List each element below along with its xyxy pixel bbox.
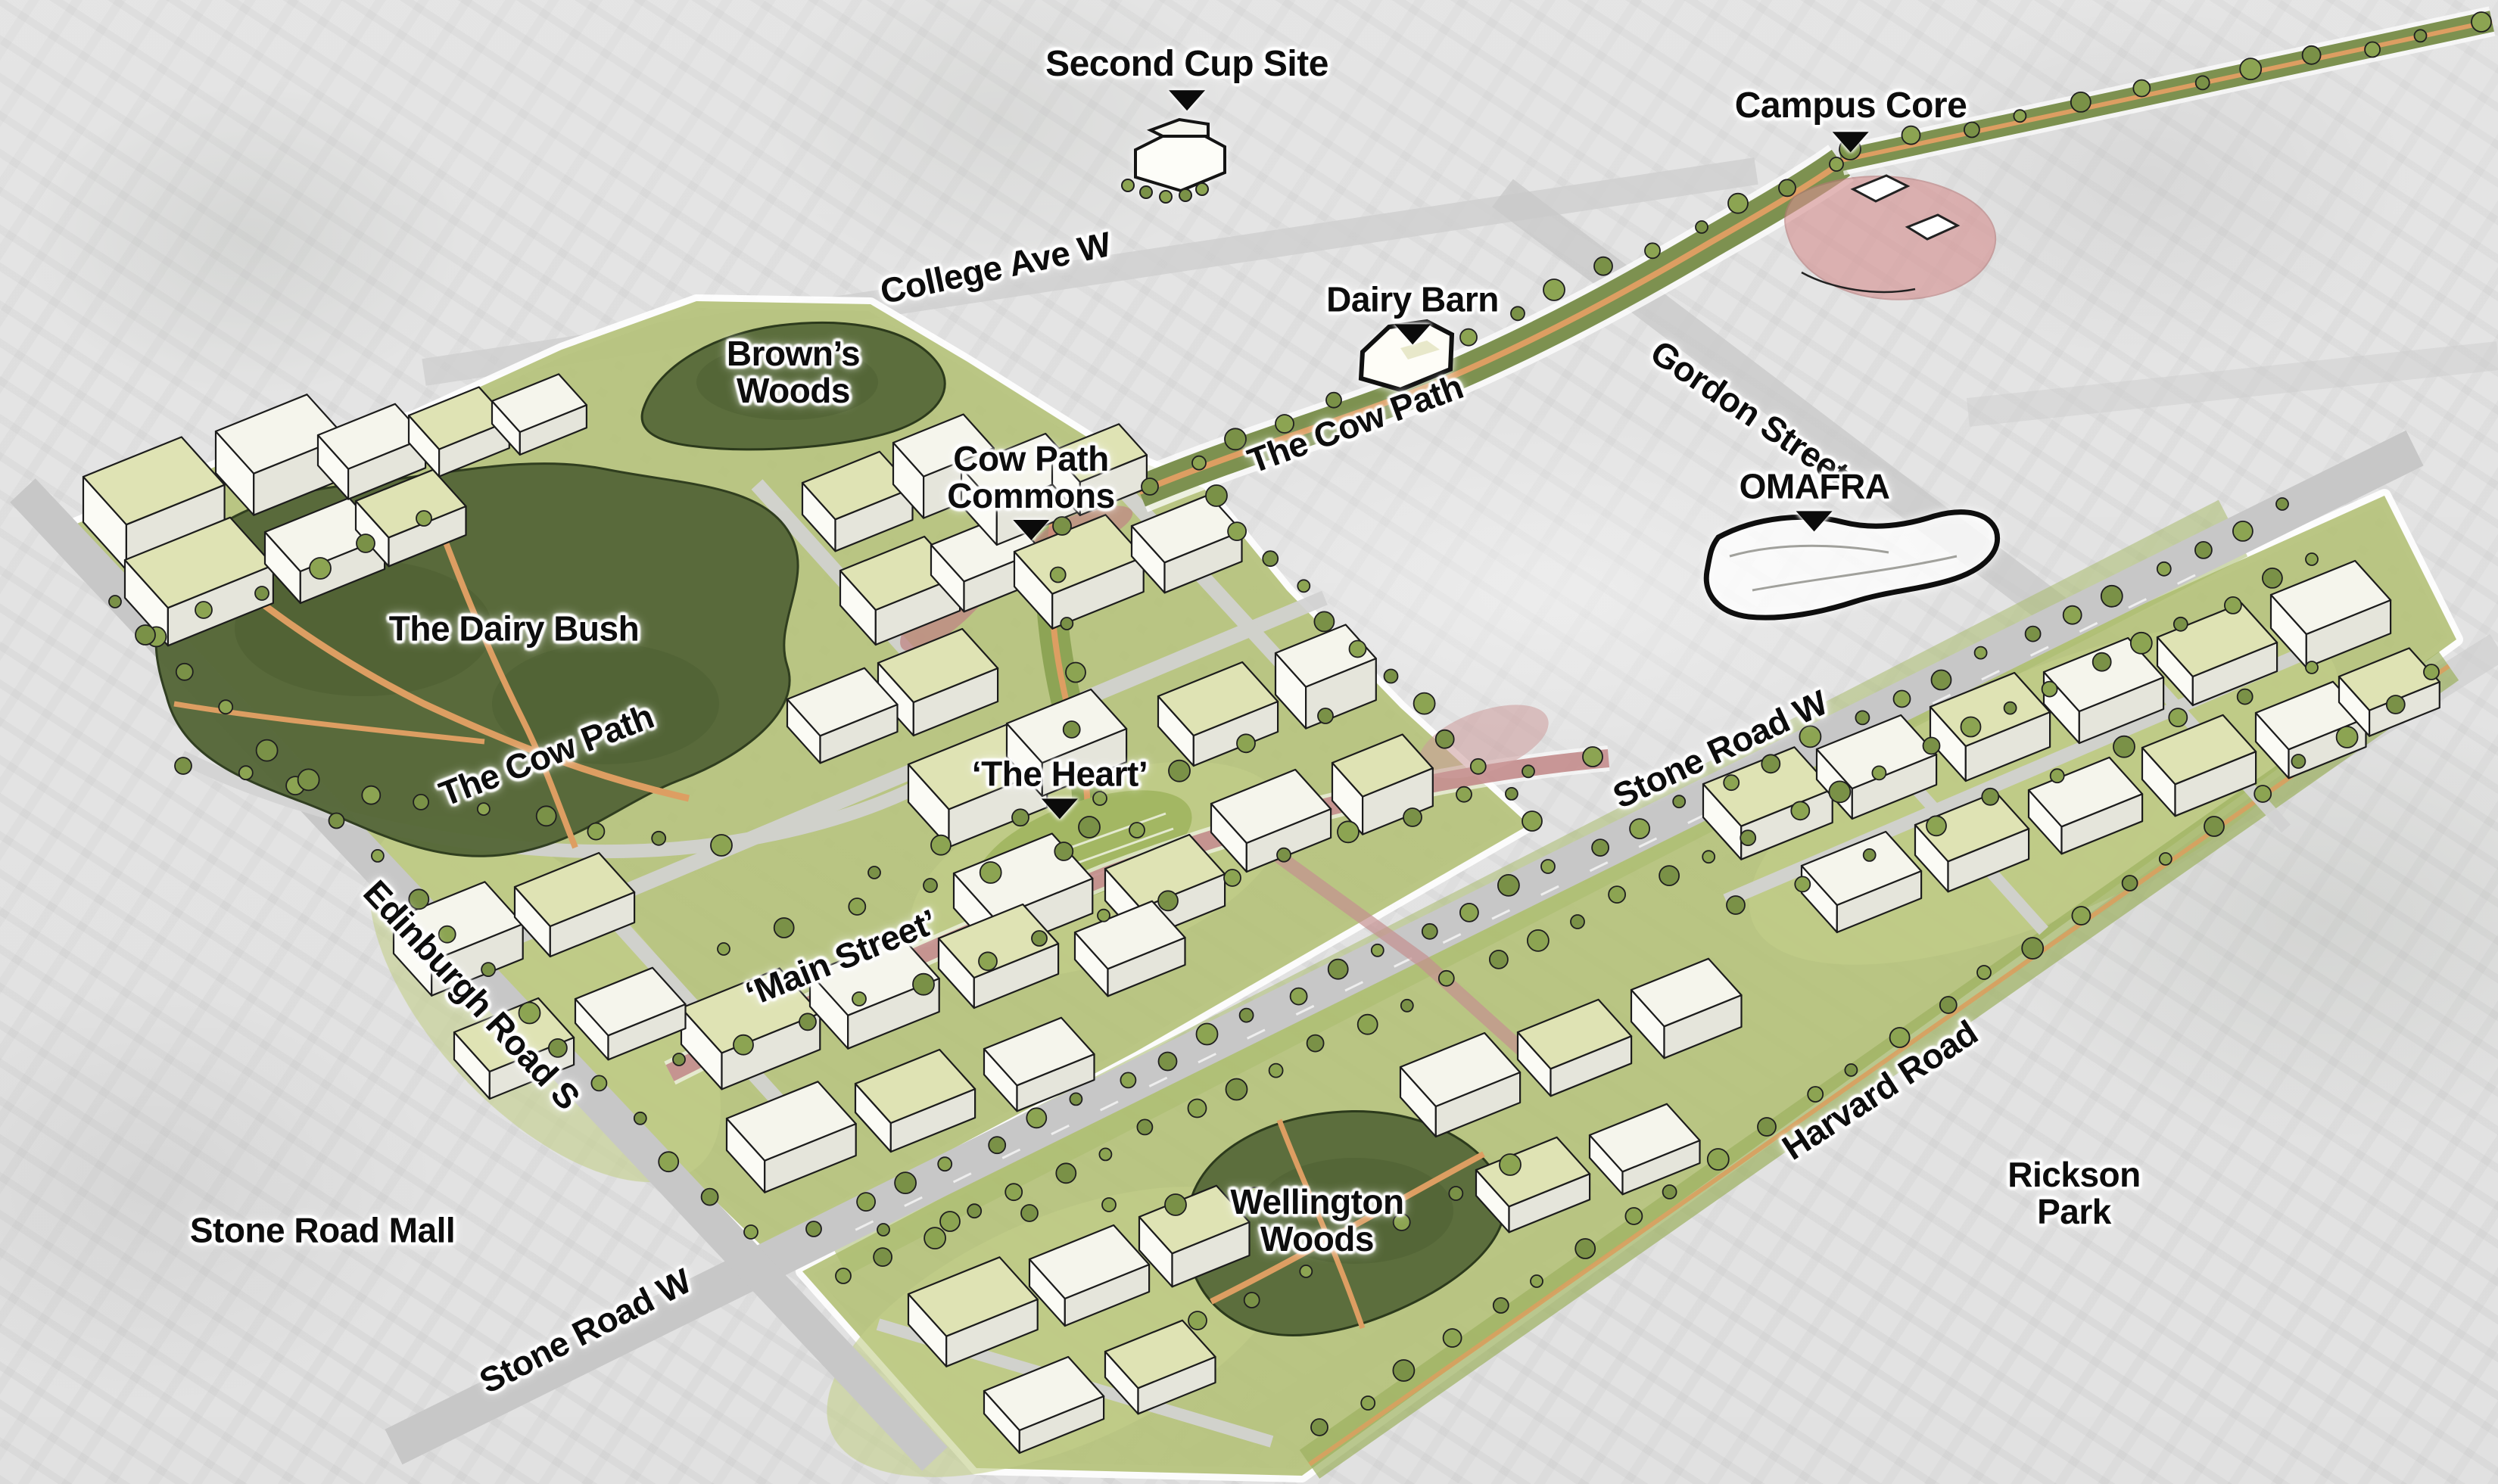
masterplan-illustration xyxy=(0,0,2498,1484)
omafra-outline xyxy=(1706,512,1997,618)
campus-core-highlight xyxy=(1785,176,1995,300)
masterplan-map: Second Cup Site Campus Core College Ave … xyxy=(0,0,2498,1484)
second-cup-building xyxy=(1122,120,1225,203)
